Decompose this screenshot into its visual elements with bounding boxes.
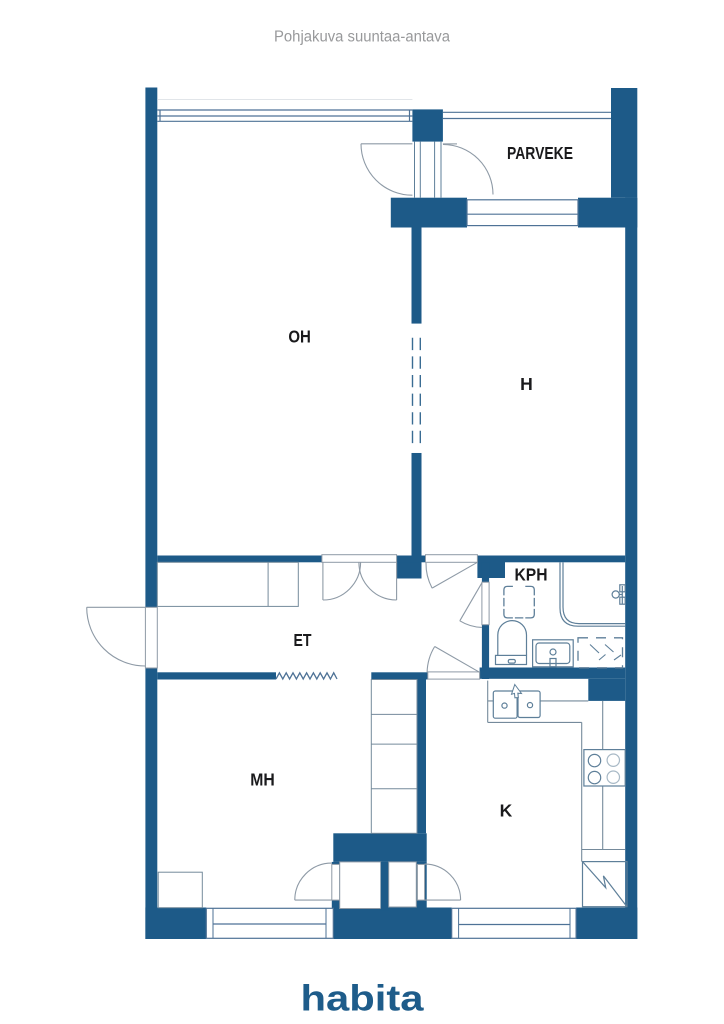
svg-text:PARVEKE: PARVEKE <box>507 143 573 163</box>
svg-text:ET: ET <box>294 630 312 650</box>
svg-text:H: H <box>520 374 533 394</box>
svg-text:OH: OH <box>288 326 311 346</box>
svg-text:Pohjakuva suuntaa-antava: Pohjakuva suuntaa-antava <box>274 29 450 46</box>
svg-text:MH: MH <box>250 770 275 790</box>
svg-text:habita: habita <box>301 978 425 1019</box>
svg-text:KPH: KPH <box>515 565 548 585</box>
svg-text:K: K <box>500 801 513 821</box>
